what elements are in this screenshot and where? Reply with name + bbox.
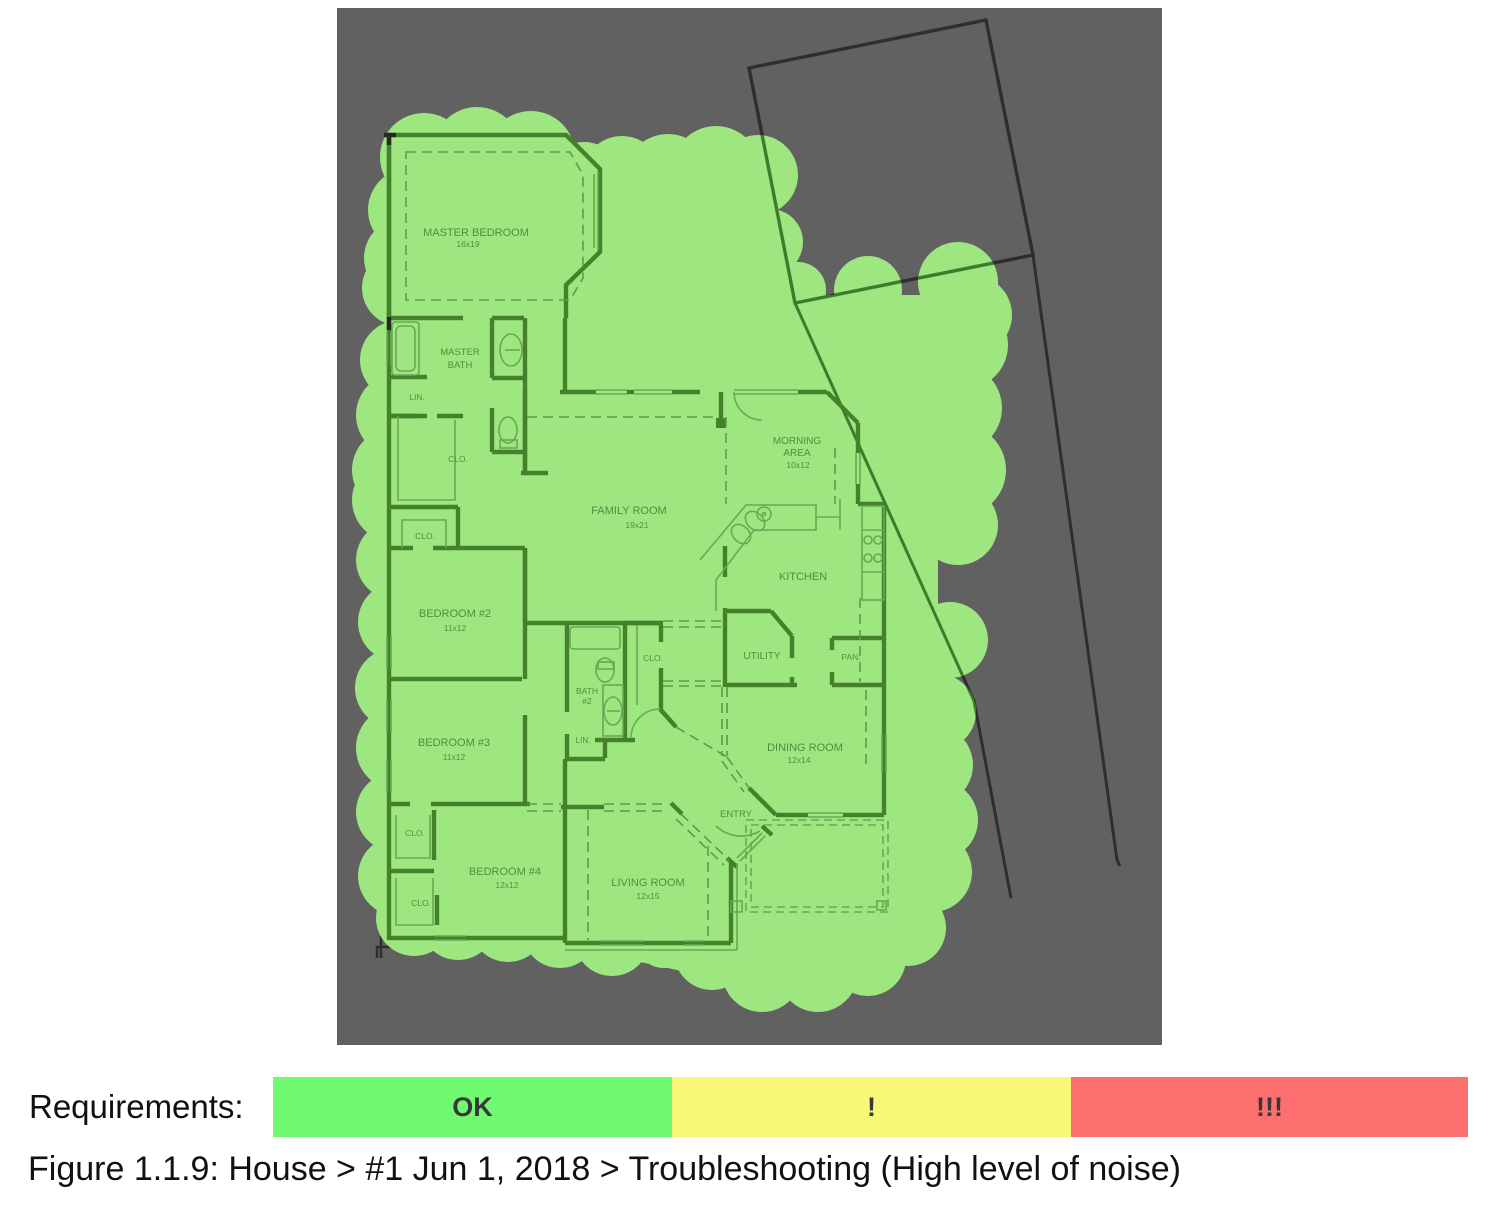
svg-text:CLO.: CLO. [405,828,425,838]
svg-text:DINING ROOM: DINING ROOM [767,742,843,754]
svg-text:10x12: 10x12 [786,460,809,470]
svg-text:BEDROOM #4: BEDROOM #4 [469,866,541,878]
svg-text:LIN.: LIN. [576,736,591,745]
svg-text:PAN.: PAN. [841,652,860,662]
svg-text:CLO.: CLO. [415,531,435,541]
svg-text:MASTER BEDROOM: MASTER BEDROOM [423,227,529,239]
svg-text:BEDROOM #2: BEDROOM #2 [419,608,491,620]
svg-text:LIVING ROOM: LIVING ROOM [611,877,684,889]
svg-text:BEDROOM #3: BEDROOM #3 [418,737,490,749]
svg-text:11x12: 11x12 [443,752,466,762]
svg-text:16x19: 16x19 [456,239,479,249]
svg-text:CLO.: CLO. [643,653,663,663]
svg-text:ENTRY: ENTRY [720,809,753,820]
svg-text:#2: #2 [582,696,592,706]
svg-text:BATH: BATH [448,360,473,371]
svg-text:LIN.: LIN. [410,393,425,402]
svg-text:11x12: 11x12 [444,623,467,633]
svg-text:MORNING: MORNING [773,436,822,447]
svg-text:KITCHEN: KITCHEN [779,571,827,583]
svg-text:CLO.: CLO. [411,898,431,908]
svg-text:12x15: 12x15 [636,891,659,901]
svg-text:UTILITY: UTILITY [743,651,781,662]
svg-text:CLO.: CLO. [448,454,468,464]
svg-text:FAMILY ROOM: FAMILY ROOM [591,505,666,517]
svg-text:12x14: 12x14 [787,755,810,765]
svg-text:BATH: BATH [576,686,598,696]
svg-text:MASTER: MASTER [440,347,480,358]
svg-text:19x21: 19x21 [625,520,648,530]
svg-text:12x12: 12x12 [495,880,518,890]
svg-text:AREA: AREA [783,448,811,459]
